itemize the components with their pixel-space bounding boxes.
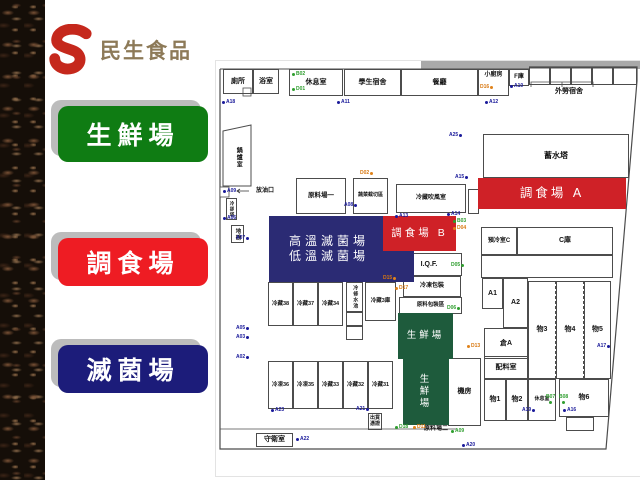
legend-button-fresh-area[interactable]: 生鮮場	[58, 106, 208, 162]
marker-A10: A10	[510, 84, 523, 89]
room-cell	[529, 67, 550, 85]
marker-dot-icon	[222, 101, 225, 104]
marker-label: A22	[300, 437, 309, 442]
marker-D15: D15	[383, 276, 396, 281]
legend-button-sterilization-area[interactable]: 滅菌場	[58, 345, 208, 393]
room-cell	[613, 67, 637, 85]
marker-dot-icon	[395, 215, 398, 218]
room-冷藏38: 冷藏38	[268, 282, 293, 326]
zone-生鮮場: 生鮮場	[398, 313, 453, 359]
marker-label: A05	[236, 326, 245, 331]
room-冷藏3庫: 冷藏3庫	[365, 282, 396, 321]
marker-A06: A06	[223, 216, 236, 221]
zone-生鮮場: 生鮮場	[403, 359, 449, 425]
marker-B07: B07	[546, 395, 555, 404]
room-浴室: 浴室	[253, 69, 279, 94]
marker-label: B07	[546, 395, 555, 400]
room-物1: 物1	[484, 379, 506, 421]
marker-label: A11	[341, 100, 350, 105]
logo-s-icon	[46, 24, 96, 76]
zone-調食場 A: 調食場 A	[478, 178, 626, 209]
marker-dot-icon	[246, 356, 249, 359]
marker-label: D17	[399, 286, 408, 291]
marker-dot-icon	[457, 307, 460, 310]
marker-label: A07	[236, 236, 245, 241]
zone-label: 調食場 B	[391, 227, 447, 240]
zone-label: 生	[420, 374, 433, 386]
marker-A02: A02	[236, 355, 249, 360]
marker-dot-icon	[459, 134, 462, 137]
room-A1: A1	[482, 278, 503, 309]
room-C庫: C庫	[517, 227, 613, 255]
marker-dot-icon	[465, 176, 468, 179]
oil-drain-arrow-icon	[237, 189, 249, 193]
room-冷凍36: 冷凍36	[268, 361, 293, 409]
marker-A09: A09	[223, 189, 236, 194]
room-物5: 物5	[584, 281, 611, 379]
room-倉A: 倉A	[484, 328, 528, 359]
room-物2: 物2	[506, 379, 528, 421]
marker-label: A02	[236, 355, 245, 360]
marker-A14: A14	[447, 212, 460, 217]
marker-A15: A15	[455, 175, 468, 180]
logo-brand-text: 民生食品	[100, 35, 192, 65]
marker-B03: B03	[453, 219, 466, 224]
marker-label: B02	[296, 72, 305, 77]
zone-label: 場	[420, 398, 433, 410]
marker-dot-icon	[413, 426, 416, 429]
room-冷藏吹風室: 冷藏吹風室	[396, 184, 466, 213]
marker-label: A25	[449, 133, 458, 138]
marker-D01: D01	[292, 87, 305, 92]
marker-dot-icon	[296, 438, 299, 441]
marker-label: A16	[567, 408, 576, 413]
room-廁所: 廁所	[223, 69, 253, 94]
marker-dot-icon	[447, 213, 450, 216]
marker-label: A09	[227, 189, 236, 194]
marker-label: A18	[226, 100, 235, 105]
marker-label: A10	[514, 84, 523, 89]
room-冷凍35: 冷凍35	[293, 361, 318, 409]
zone-調食場 B: 調食場 B	[383, 216, 456, 251]
room-cell	[592, 67, 613, 85]
marker-B02: B02	[292, 72, 305, 77]
marker-dot-icon	[453, 220, 456, 223]
marker-label: D04	[457, 226, 466, 231]
marker-label: D18	[399, 425, 408, 430]
marker-A25: A25	[449, 133, 462, 138]
marker-A03: A03	[236, 335, 249, 340]
room-配料室: 配料室	[484, 356, 528, 379]
marker-dot-icon	[246, 237, 249, 240]
marker-A16: A16	[563, 408, 576, 413]
marker-dot-icon	[563, 409, 566, 412]
marker-dot-icon	[451, 430, 454, 433]
marker-label: A13	[399, 214, 408, 219]
marker-D17: D17	[395, 286, 408, 291]
room-cell	[566, 417, 594, 431]
marker-A09: A09	[451, 429, 464, 434]
marker-dot-icon	[393, 277, 396, 280]
marker-label: A23	[275, 408, 284, 413]
marker-dot-icon	[337, 101, 340, 104]
marker-A05: A05	[236, 326, 249, 331]
room-cell	[481, 255, 613, 278]
marker-label: D13	[471, 344, 480, 349]
marker-label: D01	[296, 87, 305, 92]
room-物4: 物4	[556, 281, 584, 379]
marker-A08: A08	[344, 203, 357, 208]
room-蔬菜截切區: 蔬菜截切區	[353, 178, 388, 214]
zone-label: 調食場 A	[520, 186, 584, 202]
marker-dot-icon	[467, 345, 470, 348]
marker-label: D05	[451, 263, 460, 268]
marker-label: A21	[356, 407, 365, 412]
marker-label: A15	[455, 175, 464, 180]
marker-dot-icon	[395, 426, 398, 429]
zone-label: 鮮	[420, 386, 433, 398]
room-外勞宿舍: 外勞宿舍	[539, 86, 599, 97]
marker-label: A14	[451, 212, 460, 217]
marker-dot-icon	[354, 204, 357, 207]
marker-dot-icon	[223, 190, 226, 193]
marker-dot-icon	[223, 217, 226, 220]
marker-A13: A13	[395, 214, 408, 219]
marker-dot-icon	[453, 227, 456, 230]
marker-A20: A20	[462, 443, 475, 448]
room-冷修水池: 冷修水池	[346, 282, 363, 312]
marker-A18: A18	[222, 100, 235, 105]
marker-D06: D06	[447, 306, 460, 311]
marker-A11: A11	[337, 100, 350, 105]
marker-dot-icon	[532, 409, 535, 412]
marker-A12: A12	[485, 100, 498, 105]
room-冷藏34: 冷藏34	[318, 282, 343, 326]
legend-button-prepared-food-area[interactable]: 調食場	[58, 238, 208, 286]
zone-label: 生鮮場	[407, 330, 445, 342]
room-小廚房: 小廚房	[478, 69, 509, 96]
marker-dot-icon	[292, 73, 295, 76]
marker-dot-icon	[366, 408, 369, 411]
room-冷藏31: 冷藏31	[368, 361, 393, 409]
marker-dot-icon	[246, 336, 249, 339]
room-cell	[550, 67, 571, 85]
marker-A07: A07	[236, 236, 249, 241]
room-預冷室C: 預冷室C	[481, 227, 517, 255]
room-機房: 機房	[448, 358, 481, 426]
marker-label: B08	[559, 395, 568, 400]
marker-A19: A19	[522, 408, 535, 413]
room-蓄水塔: 蓄水塔	[483, 134, 629, 178]
marker-dot-icon	[562, 401, 565, 404]
marker-D11: D11	[413, 425, 426, 430]
marker-label: A03	[236, 335, 245, 340]
room-原料場一: 原料場一	[296, 178, 346, 214]
marker-A22: A22	[296, 437, 309, 442]
marker-dot-icon	[510, 85, 513, 88]
marker-dot-icon	[462, 444, 465, 447]
room-cell	[346, 312, 363, 326]
marker-label: D02	[360, 171, 369, 176]
marker-dot-icon	[607, 345, 610, 348]
marker-label: A20	[466, 443, 475, 448]
room-cell	[346, 326, 363, 340]
marker-dot-icon	[461, 264, 464, 267]
floor-plan-map: 廁所浴室休息室學生宿舍餐廳小廚房F庫外勞宿舍蓄水塔預冷室CC庫A1A2倉A物3物…	[215, 60, 640, 477]
marker-dot-icon	[246, 327, 249, 330]
room-鍋爐室: 鍋爐室	[231, 137, 245, 177]
rice-photo-strip	[0, 0, 45, 480]
logo: 民生食品	[46, 24, 192, 76]
slide: 民生食品 生鮮場調食場滅菌場 廁所浴室休息室學生宿舍餐廳小廚房F庫外勞宿舍蓄水塔…	[0, 0, 640, 480]
marker-label: D06	[447, 306, 456, 311]
room-餐廳: 餐廳	[401, 69, 478, 96]
room-學生宿舍: 學生宿舍	[344, 69, 401, 96]
zone-label: 高溫滅菌場	[289, 234, 369, 249]
marker-A23: A23	[271, 408, 284, 413]
marker-D02: D02	[360, 171, 373, 176]
room-cell	[571, 67, 592, 85]
marker-label: A06	[227, 216, 236, 221]
marker-label: B03	[457, 219, 466, 224]
marker-label: A12	[489, 100, 498, 105]
room-守衛室: 守衛室	[256, 433, 293, 447]
marker-dot-icon	[485, 101, 488, 104]
room-冷藏32: 冷藏32	[343, 361, 368, 409]
marker-D16: D16	[480, 85, 493, 90]
zone-label: 低溫滅菌場	[289, 249, 369, 264]
marker-A17: A17	[597, 344, 610, 349]
marker-label: A08	[344, 203, 353, 208]
marker-label: A19	[522, 408, 531, 413]
room-放油口: 放油口	[253, 187, 277, 196]
room-冷藏37: 冷藏37	[293, 282, 318, 326]
marker-dot-icon	[549, 401, 552, 404]
marker-dot-icon	[292, 88, 295, 91]
room-出貨憑證: 出貨 憑證	[368, 413, 382, 430]
marker-D18: D18	[395, 425, 408, 430]
marker-dot-icon	[490, 86, 493, 89]
marker-label: A17	[597, 344, 606, 349]
marker-dot-icon	[271, 409, 274, 412]
marker-label: D15	[383, 276, 392, 281]
marker-label: D16	[480, 85, 489, 90]
marker-label: A09	[455, 429, 464, 434]
marker-dot-icon	[395, 287, 398, 290]
marker-D05: D05	[451, 263, 464, 268]
marker-D13: D13	[467, 344, 480, 349]
marker-D04: D04	[453, 226, 466, 231]
room-冷藏33: 冷藏33	[318, 361, 343, 409]
room-物3: 物3	[528, 281, 556, 379]
marker-A21: A21	[356, 407, 369, 412]
marker-dot-icon	[370, 172, 373, 175]
marker-label: D11	[417, 425, 426, 430]
marker-B08: B08	[559, 395, 568, 404]
room-A2: A2	[503, 278, 528, 328]
